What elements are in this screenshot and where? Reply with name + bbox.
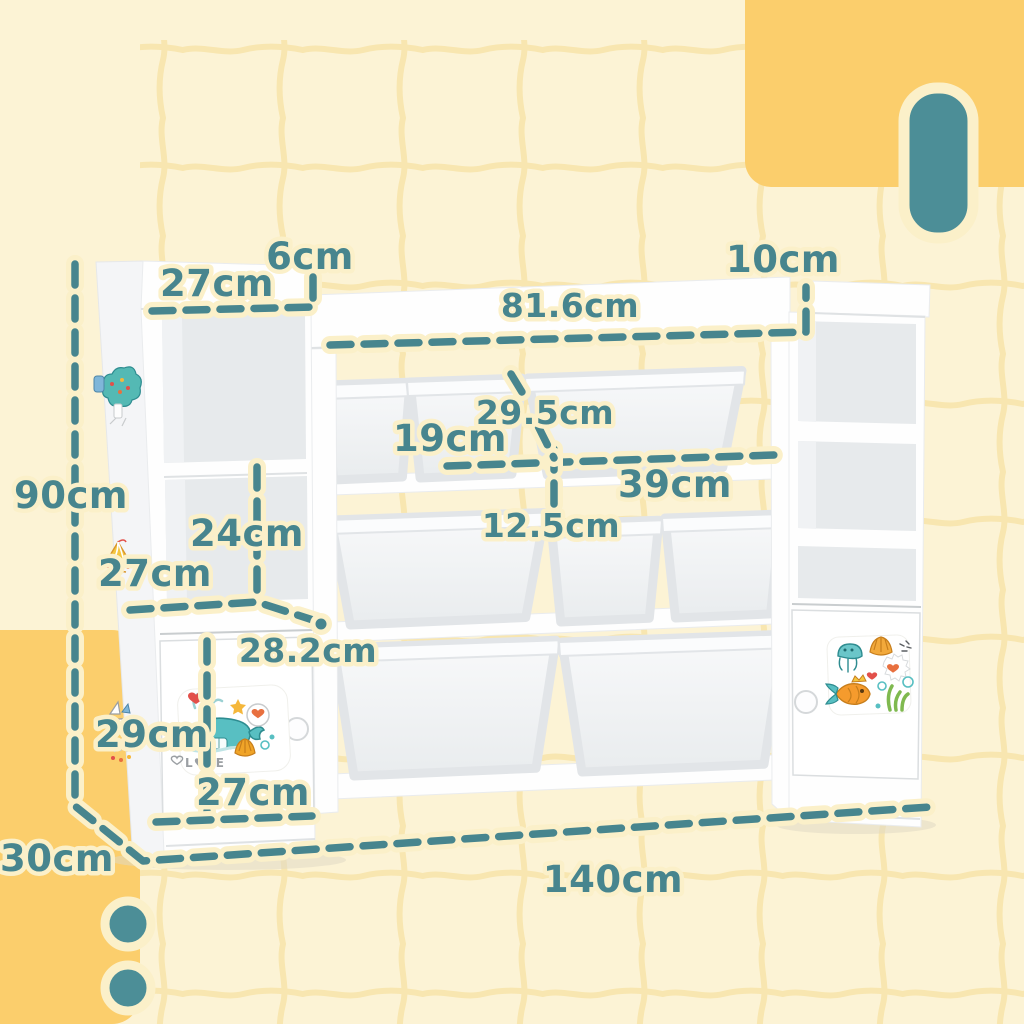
label-door-width: 27cm: [196, 771, 310, 814]
label-total-height: 90cm: [14, 474, 128, 517]
orange-block-top-right: [745, 0, 1024, 187]
label-bin-small-width: 19cm: [393, 417, 507, 460]
right-tower-top-lip: [812, 281, 930, 317]
label-bin-large-width: 39cm: [618, 463, 732, 506]
jellyfish-icon: [838, 644, 862, 659]
teal-circle-bottom: [105, 965, 151, 1011]
label-middle-top-width: 81.6cm: [501, 286, 639, 325]
storage-bin-rim: [662, 514, 784, 532]
middle-right-divider: [771, 332, 790, 820]
dimension-endpoint-dot: [316, 619, 327, 630]
label-total-width: 140cm: [543, 858, 683, 901]
label-total-depth: 30cm: [0, 837, 114, 880]
diagram-canvas: L♥VE: [0, 0, 1024, 1024]
label-bin-height: 12.5cm: [482, 506, 620, 545]
teal-circle-top: [105, 901, 151, 947]
label-left-shelf-diagonal: 28.2cm: [239, 631, 377, 670]
label-door-height: 29cm: [95, 713, 209, 756]
label-left-shelf-height: 24cm: [190, 512, 304, 555]
teal-pill-shape: [904, 88, 973, 238]
right-door-knob: [795, 691, 817, 713]
fish-sticker: [826, 635, 913, 716]
product-dimension-diagram: L♥VE: [0, 0, 1024, 1024]
right-tower: [789, 281, 930, 827]
right-tower-compartment-small: [798, 546, 916, 601]
label-left-top-width: 27cm: [160, 262, 274, 305]
label-right-lip-height: 10cm: [726, 238, 840, 281]
label-left-shelf-width: 27cm: [98, 552, 212, 595]
label-left-lip-height: 6cm: [266, 235, 354, 278]
